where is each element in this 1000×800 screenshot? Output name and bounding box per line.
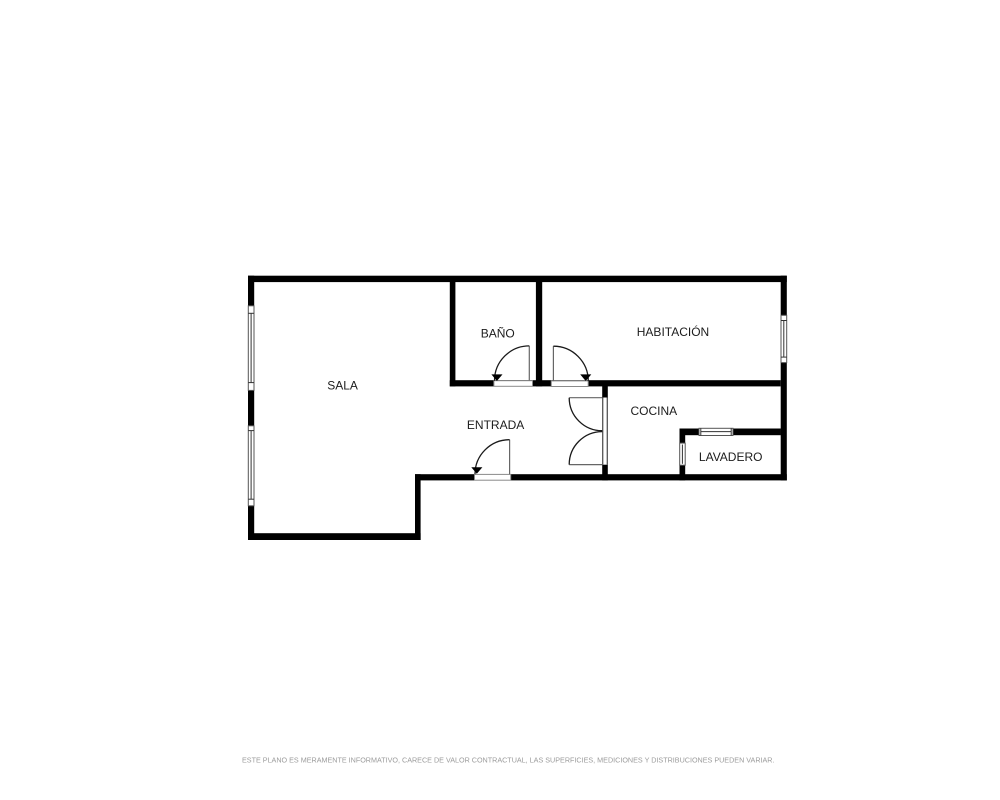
svg-text:ENTRADA: ENTRADA (467, 418, 524, 432)
svg-text:SALA: SALA (327, 378, 358, 392)
svg-text:COCINA: COCINA (630, 404, 677, 418)
svg-text:HABITACIÓN: HABITACIÓN (637, 324, 709, 339)
svg-text:LAVADERO: LAVADERO (699, 450, 763, 464)
svg-text:ESTE PLANO ES MERAMENTE INFORM: ESTE PLANO ES MERAMENTE INFORMATIVO, CAR… (242, 756, 775, 765)
svg-text:BAÑO: BAÑO (481, 326, 515, 340)
